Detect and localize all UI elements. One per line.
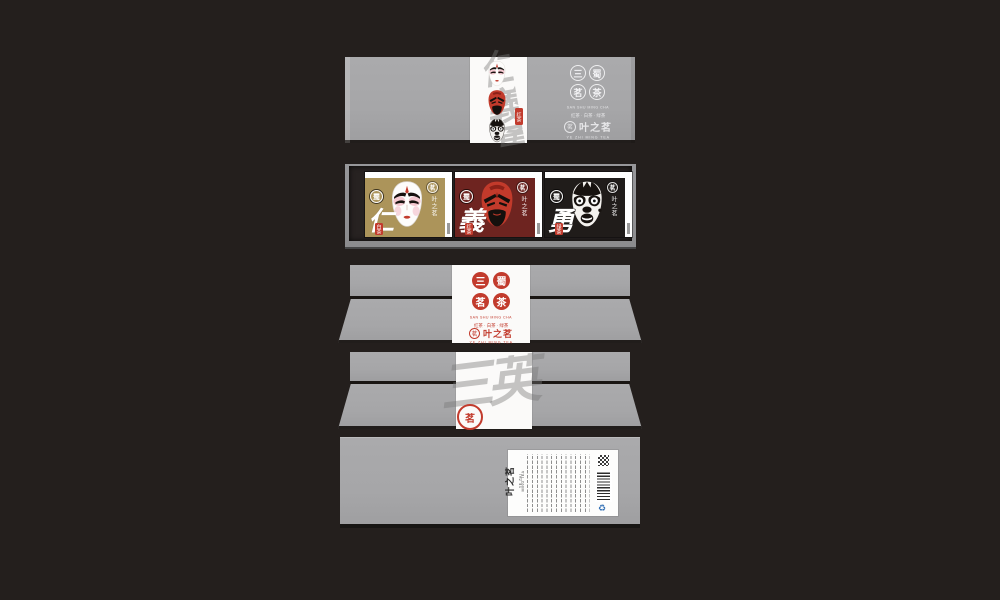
fine-print-text <box>526 454 590 512</box>
lid-brand-romanized: YE ZHI MING TEA <box>566 135 609 139</box>
barcode <box>597 472 610 500</box>
bottom-info-strip: 叶之茗 YE ZHI MING TEA ♻ <box>508 450 618 516</box>
brand-vertical-text: 叶之茗 <box>519 196 528 228</box>
tea-card-white-mask: 三 蜀 仁 白茶 茗 叶之茗 <box>365 172 452 237</box>
card-top-band <box>545 172 632 178</box>
card-top-band <box>365 172 452 178</box>
seal-stamp: 茶 <box>589 84 605 100</box>
lid-seal-grid: 三 蜀 茗 茶 <box>569 65 606 100</box>
qr-code <box>598 455 609 466</box>
card-right-strip <box>625 178 632 237</box>
front-brand-romanized: YE ZHI MING TEA <box>469 340 512 344</box>
brand-logotype: 叶之茗 <box>507 453 516 509</box>
card-tea-tag: 绿茶 <box>555 223 563 235</box>
seal-stamp: 蜀 <box>493 272 510 289</box>
bottom-brand-block: 叶之茗 YE ZHI MING TEA <box>507 453 521 509</box>
brand-vertical-text: 叶之茗 <box>609 196 618 228</box>
opera-mask-black-icon <box>484 118 510 143</box>
seal-stamp: 茗 <box>570 84 586 100</box>
seal-stamp: 三 <box>472 272 489 289</box>
brand-vertical-text: 叶之茗 <box>429 196 438 228</box>
fine-print-mark <box>537 223 540 234</box>
lid-pinyin-text: SAN SHU MING CHA <box>567 105 609 109</box>
panel-lid-top: 仁義勇 <box>345 57 635 143</box>
seal-stamp: 蜀 <box>589 65 605 81</box>
front-pinyin-text: SAN SHU MING CHA <box>470 315 512 319</box>
seal-stamp: 茗 <box>472 293 489 310</box>
seal-stamp: 三 <box>570 65 586 81</box>
card-top-band <box>455 172 542 178</box>
brand-ring-icon: 茗 <box>517 182 528 193</box>
brand-logotype: 叶之茗 <box>579 119 612 134</box>
back-seal-glyph: 茗 <box>465 410 475 425</box>
recycle-icon: ♻ <box>598 503 606 513</box>
lid-tea-tag: 红茶 <box>515 108 523 125</box>
lid-product-line-text: 红茶 · 白茶 · 绿茶 <box>571 112 605 118</box>
card-tea-tag: 白茶 <box>375 223 383 235</box>
tea-card-black-mask: 三 蜀 勇 绿茶 茗 叶之茗 <box>545 172 632 237</box>
back-red-seal: 茗 <box>457 404 483 430</box>
panel-bottom: 叶之茗 YE ZHI MING TEA ♻ <box>340 437 640 528</box>
opera-mask-white-icon <box>484 60 510 87</box>
brand-ring-icon: 茗 <box>607 182 618 193</box>
brand-ring-icon: 茗 <box>427 182 438 193</box>
bottom-brand-romanized: YE ZHI MING TEA <box>519 468 524 493</box>
seal-stamp: 茶 <box>493 293 510 310</box>
card-right-strip <box>535 178 542 237</box>
packaging-design-canvas: 仁義勇 <box>0 0 1000 600</box>
fine-print-mark <box>447 223 450 234</box>
panel-tray: 三 蜀 仁 白茶 茗 叶之茗 <box>345 164 636 249</box>
tea-card-red-mask: 三 蜀 義 红茶 茗 叶之茗 <box>455 172 542 237</box>
card-tea-tag: 红茶 <box>465 223 473 235</box>
opera-mask-red-icon <box>484 89 510 116</box>
brand-ring-icon: 茗 <box>564 121 576 133</box>
front-label-band: 三 蜀 茗 茶 SAN SHU MING CHA 红茶 · 白茶 · 绿茶 茗 … <box>452 265 530 343</box>
card-right-strip <box>445 178 452 237</box>
fine-print-mark <box>627 223 630 234</box>
